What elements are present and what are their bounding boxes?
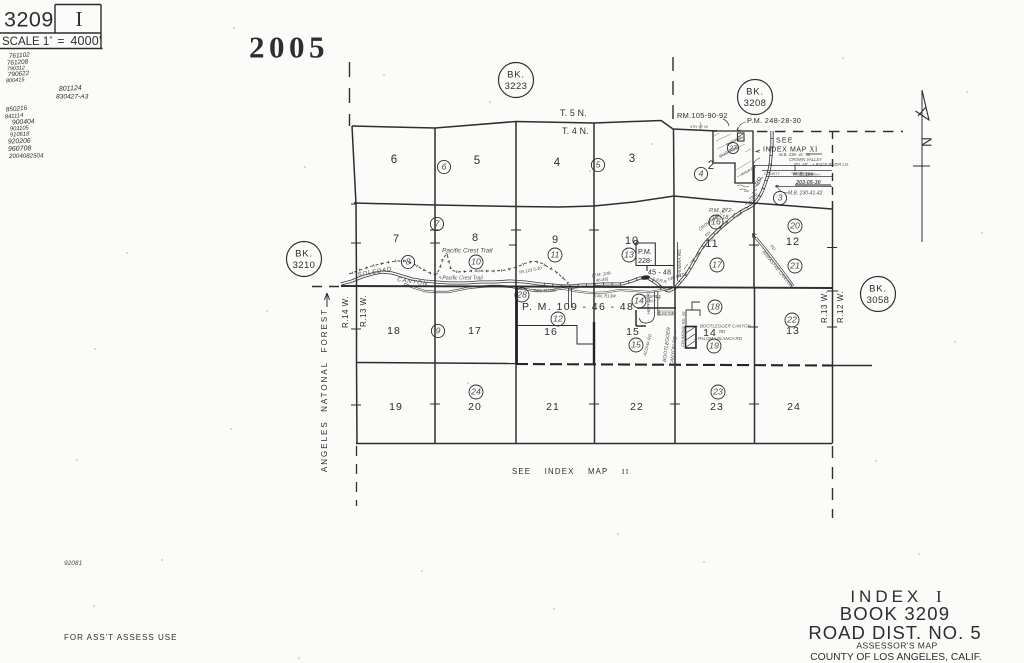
svg-text:RD. 60': RD. 60' <box>794 162 808 167</box>
svg-text:BK.: BK. <box>295 249 313 260</box>
svg-text:N: N <box>919 137 934 147</box>
svg-text:18: 18 <box>710 302 720 312</box>
svg-text:+ BUCK RIVER LN.: + BUCK RIVER LN. <box>812 162 849 167</box>
svg-text:12: 12 <box>553 314 563 324</box>
svg-text:801124: 801124 <box>59 85 82 93</box>
svg-text:10: 10 <box>471 257 481 267</box>
svg-text:28: 28 <box>516 290 527 300</box>
svg-text:BK.: BK. <box>507 70 525 81</box>
svg-text:45 - 48: 45 - 48 <box>648 270 671 277</box>
svg-text:PALOMA BLANCA RD: PALOMA BLANCA RD <box>698 336 743 341</box>
svg-text:92081: 92081 <box>64 560 82 567</box>
svg-text:5TH ST W: 5TH ST W <box>690 125 708 129</box>
svg-text:I: I <box>76 7 83 31</box>
svg-text:23: 23 <box>710 401 724 413</box>
svg-text:15: 15 <box>631 340 641 350</box>
svg-text:19: 19 <box>709 341 719 351</box>
svg-text:920206: 920206 <box>8 138 31 146</box>
svg-text:5: 5 <box>474 155 480 167</box>
svg-text:20: 20 <box>468 401 482 413</box>
svg-text:3223: 3223 <box>505 81 528 92</box>
svg-text:2: 2 <box>708 160 714 172</box>
svg-text:8: 8 <box>406 257 411 267</box>
svg-text:M.B. 230-41-42: M.B. 230-41-42 <box>788 191 823 197</box>
svg-text:5: 5 <box>596 160 601 170</box>
svg-text:BK.: BK. <box>746 87 764 98</box>
svg-text:3210: 3210 <box>293 260 316 271</box>
svg-text:RM.105-90-92: RM.105-90-92 <box>677 111 728 120</box>
svg-text:P.M.: P.M. <box>638 247 652 256</box>
svg-text:FOR ASS'T ASSESS USE: FOR ASS'T ASSESS USE <box>64 633 177 642</box>
svg-text:7: 7 <box>393 233 399 245</box>
svg-text:4: 4 <box>554 157 561 169</box>
svg-text:BOOTLEGGER CANYON: BOOTLEGGER CANYON <box>700 324 752 329</box>
svg-text:20: 20 <box>789 221 800 231</box>
svg-text:6: 6 <box>442 162 447 172</box>
svg-text:19: 19 <box>389 401 403 413</box>
svg-text:830427-A3: 830427-A3 <box>56 94 89 101</box>
svg-text:BOOK 3209: BOOK 3209 <box>840 603 951 624</box>
svg-text:P. M. 109 - 46 - 48: P. M. 109 - 46 - 48 <box>522 301 634 313</box>
svg-text:R.13 W.: R.13 W. <box>820 291 829 323</box>
svg-text:2a.: 2a. <box>743 188 750 193</box>
svg-text:2005: 2005 <box>249 30 329 65</box>
svg-text:9: 9 <box>552 234 558 246</box>
svg-text:9: 9 <box>436 326 441 336</box>
svg-text:2004082504: 2004082504 <box>8 152 44 160</box>
svg-text:R.12 W.: R.12 W. <box>836 291 845 323</box>
svg-text:14: 14 <box>634 296 644 306</box>
svg-text:228-: 228- <box>638 256 653 265</box>
svg-text:16: 16 <box>544 326 558 338</box>
svg-text:15: 15 <box>626 326 640 338</box>
svg-text:OAKTREE: OAKTREE <box>660 312 677 316</box>
svg-text:4: 4 <box>699 169 704 179</box>
svg-text:R.14 W.: R.14 W. <box>341 296 350 328</box>
svg-text:16: 16 <box>711 217 721 227</box>
svg-text:COUNTY OF LOS ANGELES, CALIF.: COUNTY OF LOS ANGELES, CALIF. <box>810 652 981 663</box>
svg-text:T. 5 N.: T. 5 N. <box>560 108 587 118</box>
svg-text:T4N, R13W: T4N, R13W <box>594 294 617 299</box>
svg-text:8: 8 <box>472 232 478 244</box>
svg-text:ASSESSOR'S MAP: ASSESSOR'S MAP <box>856 641 937 651</box>
svg-text:3208: 3208 <box>744 98 767 109</box>
svg-text:17: 17 <box>712 260 723 270</box>
svg-text:Pacific Crest Trail: Pacific Crest Trail <box>442 248 493 255</box>
svg-text:12: 12 <box>786 236 800 248</box>
svg-text:21: 21 <box>546 401 560 413</box>
svg-text:BK.: BK. <box>869 284 887 295</box>
svg-text:SEE INDEX MAP II: SEE INDEX MAP II <box>512 467 630 476</box>
svg-text:P.M. 248-28-30: P.M. 248-28-30 <box>747 116 801 125</box>
svg-text:24: 24 <box>787 401 801 413</box>
svg-text:HEFFNER: HEFFNER <box>646 292 651 314</box>
svg-text:22: 22 <box>630 401 644 413</box>
svg-text:13: 13 <box>624 250 634 260</box>
svg-text:R.13 W.: R.13 W. <box>359 295 368 327</box>
svg-text:COUNTY: COUNTY <box>764 172 780 176</box>
svg-text:27: 27 <box>728 146 738 153</box>
svg-text:18: 18 <box>387 325 401 337</box>
svg-text:11: 11 <box>705 238 718 250</box>
svg-text:ANGELES NATONAL FOREST: ANGELES NATONAL FOREST <box>320 308 329 472</box>
svg-text:23: 23 <box>712 387 723 397</box>
svg-text:17: 17 <box>468 325 482 337</box>
svg-text:3: 3 <box>778 193 783 203</box>
svg-text:T4N, R13W: T4N, R13W <box>533 288 557 293</box>
svg-text:24: 24 <box>470 387 481 397</box>
svg-text:11: 11 <box>550 250 559 260</box>
svg-text:3058: 3058 <box>867 295 890 306</box>
svg-text:3209: 3209 <box>4 8 54 32</box>
svg-text:6: 6 <box>391 154 397 166</box>
svg-text:T. 4 N.: T. 4 N. <box>562 126 589 136</box>
svg-text:3: 3 <box>629 153 635 165</box>
svg-text:22: 22 <box>786 315 797 325</box>
svg-text:P.M. 272-: P.M. 272- <box>709 208 733 214</box>
svg-text:21: 21 <box>789 261 800 271</box>
svg-text:SEE: SEE <box>776 138 794 145</box>
svg-text:↖Pacific Crest Trail: ↖Pacific Crest Trail <box>438 276 483 282</box>
svg-text:RD: RD <box>719 329 725 334</box>
